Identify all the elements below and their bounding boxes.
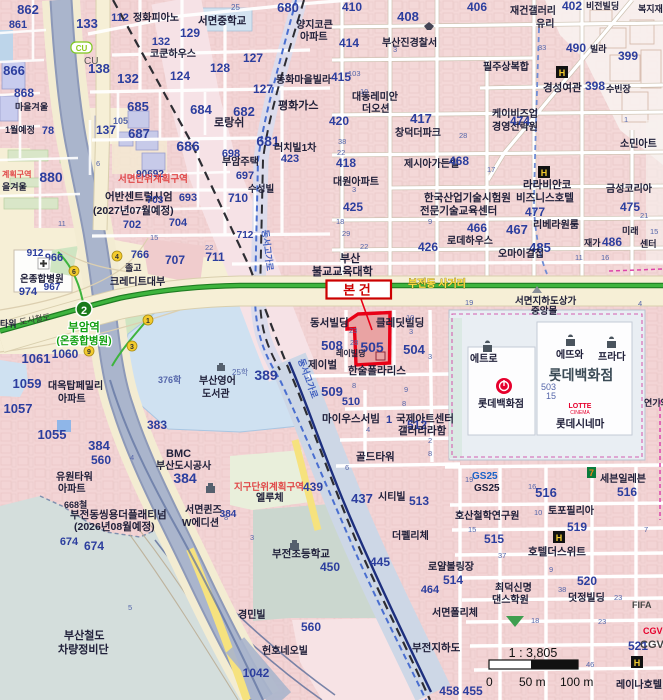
svg-text:11: 11 <box>58 219 66 228</box>
svg-text:댄스학원: 댄스학원 <box>492 593 529 606</box>
svg-text:H: H <box>559 68 566 78</box>
svg-text:437: 437 <box>351 491 373 506</box>
svg-text:1: 1 <box>624 115 628 124</box>
svg-text:2: 2 <box>81 305 87 317</box>
svg-text:16: 16 <box>601 253 609 262</box>
svg-text:137: 137 <box>96 123 116 137</box>
svg-text:최덕신명: 최덕신명 <box>495 581 532 594</box>
svg-text:128: 128 <box>210 61 230 75</box>
svg-text:967: 967 <box>44 282 61 293</box>
svg-text:리베라원룸: 리베라원룸 <box>533 218 579 231</box>
svg-text:비전빌딩: 비전빌딩 <box>586 0 619 11</box>
svg-text:129: 129 <box>180 26 200 40</box>
svg-text:부산: 부산 <box>340 251 360 265</box>
svg-text:766: 766 <box>131 249 149 261</box>
svg-text:갤러리라함: 갤러리라함 <box>398 424 447 437</box>
svg-text:674: 674 <box>84 539 104 553</box>
svg-text:0: 0 <box>486 675 493 689</box>
svg-text:BMC: BMC <box>166 448 191 460</box>
svg-text:513: 513 <box>409 494 429 508</box>
svg-text:423: 423 <box>281 153 299 165</box>
svg-text:부전지하도: 부전지하도 <box>412 641 461 654</box>
svg-text:3: 3 <box>130 344 134 351</box>
svg-text:710: 710 <box>228 191 248 205</box>
svg-text:516: 516 <box>617 485 637 499</box>
svg-text:로랑쉬: 로랑쉬 <box>214 115 244 129</box>
svg-text:3: 3 <box>352 185 356 194</box>
svg-text:862: 862 <box>17 2 39 17</box>
svg-text:프라다: 프라다 <box>598 350 626 363</box>
svg-text:제이벌: 제이벌 <box>308 358 337 371</box>
svg-text:560: 560 <box>301 620 321 634</box>
svg-text:504: 504 <box>403 342 425 357</box>
svg-text:37: 37 <box>498 551 506 560</box>
svg-text:468: 468 <box>449 154 469 168</box>
svg-text:호산철학연구원: 호산철학연구원 <box>455 509 519 522</box>
svg-text:대옥탑페밀리: 대옥탑페밀리 <box>48 379 103 392</box>
svg-text:25: 25 <box>231 3 240 12</box>
svg-text:687: 687 <box>128 126 150 141</box>
svg-text:19: 19 <box>465 298 473 307</box>
svg-text:CGV: CGV <box>640 639 663 651</box>
svg-text:아파트: 아파트 <box>300 30 328 43</box>
svg-text:21: 21 <box>640 211 648 220</box>
svg-text:금성코리아: 금성코리아 <box>606 182 653 195</box>
svg-text:15: 15 <box>650 227 658 236</box>
svg-text:골드타워: 골드타워 <box>356 450 395 463</box>
svg-text:8: 8 <box>428 449 432 458</box>
svg-text:시티빌: 시티빌 <box>378 490 406 503</box>
svg-text:1 : 3,805: 1 : 3,805 <box>509 646 558 660</box>
svg-text:1060: 1060 <box>52 347 79 361</box>
svg-text:974: 974 <box>19 286 38 298</box>
svg-text:재가: 재가 <box>584 237 601 248</box>
svg-text:유리: 유리 <box>536 17 554 30</box>
svg-text:재건갤러리: 재건갤러리 <box>510 4 556 17</box>
svg-text:16: 16 <box>528 482 536 491</box>
svg-text:롯데백화점: 롯데백화점 <box>549 367 613 383</box>
svg-text:GS25: GS25 <box>472 471 498 482</box>
svg-text:384: 384 <box>173 470 197 486</box>
svg-text:22: 22 <box>337 148 345 157</box>
svg-text:라라비안코: 라라비안코 <box>523 178 572 191</box>
svg-text:소민아트: 소민아트 <box>620 137 657 150</box>
svg-text:1057: 1057 <box>4 401 33 416</box>
svg-text:양지코큰: 양지코큰 <box>296 18 333 31</box>
svg-text:560: 560 <box>91 453 111 467</box>
svg-text:398: 398 <box>585 79 605 93</box>
svg-text:에뜨와: 에뜨와 <box>556 348 584 361</box>
svg-text:FIFA: FIFA <box>632 600 652 610</box>
svg-text:519: 519 <box>567 520 587 534</box>
svg-text:코쿤하우스: 코쿤하우스 <box>150 47 196 60</box>
svg-text:28: 28 <box>350 338 358 347</box>
svg-text:레이나호텔: 레이나호텔 <box>616 678 662 691</box>
svg-text:406: 406 <box>467 0 487 14</box>
svg-text:호텔더스위트: 호텔더스위트 <box>528 545 586 558</box>
svg-text:3: 3 <box>409 327 413 336</box>
svg-text:경성여관: 경성여관 <box>543 81 582 94</box>
svg-text:861: 861 <box>9 19 27 31</box>
svg-text:399: 399 <box>618 49 638 63</box>
svg-text:22: 22 <box>205 243 213 252</box>
svg-text:685: 685 <box>127 99 149 114</box>
svg-text:한술폴라리스: 한술폴라리스 <box>348 364 406 377</box>
svg-text:704: 704 <box>169 217 188 229</box>
svg-text:경민빌: 경민빌 <box>238 608 266 621</box>
svg-text:10: 10 <box>360 87 368 96</box>
svg-text:22: 22 <box>360 242 368 251</box>
svg-text:4: 4 <box>115 254 119 261</box>
svg-text:46: 46 <box>586 660 594 669</box>
svg-text:더오션: 더오션 <box>362 102 390 115</box>
svg-text:33: 33 <box>538 43 546 52</box>
svg-text:(온종합병원): (온종합병원) <box>56 334 111 347</box>
svg-text:7: 7 <box>589 468 594 478</box>
svg-text:414: 414 <box>339 36 359 50</box>
svg-text:458 455: 458 455 <box>439 684 483 698</box>
svg-text:서면폴리체: 서면폴리체 <box>432 606 478 619</box>
svg-text:138: 138 <box>88 61 110 76</box>
svg-text:10: 10 <box>534 508 542 517</box>
svg-text:불교교육대학: 불교교육대학 <box>312 264 373 278</box>
svg-text:467: 467 <box>506 222 528 237</box>
svg-text:693: 693 <box>179 192 197 204</box>
svg-text:필주상복합: 필주상복합 <box>483 60 530 73</box>
svg-text:9: 9 <box>428 217 432 226</box>
svg-text:127: 127 <box>243 51 263 65</box>
svg-text:383: 383 <box>147 418 167 432</box>
svg-text:425: 425 <box>343 200 363 214</box>
svg-text:674: 674 <box>60 536 79 548</box>
svg-text:475: 475 <box>620 200 640 214</box>
svg-text:롯데시네마: 롯데시네마 <box>556 417 605 430</box>
svg-text:418: 418 <box>336 156 356 170</box>
svg-text:509: 509 <box>321 384 343 399</box>
svg-text:6: 6 <box>96 159 100 168</box>
svg-text:124: 124 <box>170 69 190 83</box>
svg-text:697: 697 <box>236 170 254 182</box>
svg-text:23: 23 <box>614 593 622 602</box>
svg-text:8: 8 <box>402 399 406 408</box>
svg-text:78: 78 <box>42 125 54 137</box>
svg-text:417: 417 <box>410 111 432 126</box>
svg-text:912: 912 <box>27 248 44 259</box>
svg-text:오마이걸집: 오마이걸집 <box>498 247 544 260</box>
svg-text:부암주택: 부암주택 <box>222 155 259 168</box>
svg-text:132: 132 <box>117 71 139 86</box>
svg-text:426: 426 <box>418 240 438 254</box>
svg-text:3: 3 <box>393 45 397 54</box>
svg-text:수성빌: 수성빌 <box>248 183 274 195</box>
svg-text:376학: 376학 <box>158 374 182 385</box>
svg-text:중앙몰: 중앙몰 <box>531 305 557 317</box>
svg-text:23: 23 <box>598 617 606 626</box>
svg-text:세븐일레븐: 세븐일레븐 <box>600 472 646 485</box>
svg-text:880: 880 <box>39 169 63 185</box>
svg-text:1059: 1059 <box>13 376 42 391</box>
svg-text:1055: 1055 <box>38 427 67 442</box>
svg-text:졸고: 졸고 <box>125 263 142 273</box>
svg-text:703: 703 <box>147 195 164 206</box>
svg-text:2: 2 <box>428 436 432 445</box>
svg-text:11: 11 <box>575 253 583 262</box>
svg-text:9: 9 <box>549 565 553 574</box>
svg-text:서면중학교: 서면중학교 <box>198 14 247 27</box>
svg-text:타워: 타워 <box>0 318 17 329</box>
svg-text:CINEMA: CINEMA <box>570 410 590 416</box>
svg-text:엘루체: 엘루체 <box>256 491 284 504</box>
svg-text:창덕더파크: 창덕더파크 <box>395 126 441 139</box>
svg-text:미래: 미래 <box>622 225 639 236</box>
svg-text:4: 4 <box>366 425 370 434</box>
svg-text:서면단위계획구역: 서면단위계획구역 <box>118 173 188 185</box>
svg-text:868: 868 <box>14 86 34 100</box>
svg-text:23: 23 <box>349 326 357 335</box>
svg-text:센터: 센터 <box>640 238 657 249</box>
svg-text:1: 1 <box>146 318 150 325</box>
svg-text:정화피아노: 정화피아노 <box>133 11 179 24</box>
svg-text:본 건: 본 건 <box>343 283 371 298</box>
svg-text:서면퀸즈: 서면퀸즈 <box>185 503 222 516</box>
svg-text:부산진경찰서: 부산진경찰서 <box>382 36 437 49</box>
svg-text:19: 19 <box>465 475 473 484</box>
svg-text:로얄볼링장: 로얄볼링장 <box>428 560 475 573</box>
svg-text:에트로: 에트로 <box>470 352 498 365</box>
svg-text:H: H <box>556 533 563 543</box>
svg-text:389: 389 <box>254 367 278 383</box>
svg-text:비즈니스호텔: 비즈니스호텔 <box>516 191 574 204</box>
svg-text:684: 684 <box>190 102 212 117</box>
svg-text:9: 9 <box>404 385 408 394</box>
svg-text:686: 686 <box>176 138 200 154</box>
svg-text:H: H <box>541 168 548 178</box>
svg-text:아파트: 아파트 <box>58 482 86 495</box>
svg-text:15: 15 <box>546 391 556 401</box>
svg-text:차량정비단: 차량정비단 <box>58 642 109 656</box>
svg-text:516: 516 <box>535 485 557 500</box>
svg-text:520: 520 <box>577 574 597 588</box>
svg-text:450: 450 <box>320 560 340 574</box>
svg-text:전문기술교육센터: 전문기술교육센터 <box>420 204 497 217</box>
svg-text:동서빌딩: 동서빌딩 <box>310 316 349 329</box>
svg-text:LOTTE: LOTTE <box>569 403 592 410</box>
svg-text:로데하우스: 로데하우스 <box>447 234 493 247</box>
svg-text:아파트: 아파트 <box>58 392 86 405</box>
svg-text:1: 1 <box>386 414 392 426</box>
svg-text:덧정빌딩: 덧정빌딩 <box>568 591 605 604</box>
svg-text:38: 38 <box>558 585 566 594</box>
svg-text:계획구역: 계획구역 <box>2 169 31 179</box>
svg-text:3: 3 <box>428 352 432 361</box>
svg-text:464: 464 <box>421 584 440 596</box>
svg-text:514: 514 <box>443 573 463 587</box>
svg-text:부산철도: 부산철도 <box>64 628 104 642</box>
svg-text:부전초등학교: 부전초등학교 <box>272 547 330 560</box>
svg-text:8: 8 <box>352 381 356 390</box>
svg-text:6: 6 <box>345 463 349 472</box>
svg-text:515: 515 <box>484 532 504 546</box>
svg-text:롯데백화점: 롯데백화점 <box>478 397 524 410</box>
svg-text:127: 127 <box>253 82 273 96</box>
svg-text:100 m: 100 m <box>560 675 593 689</box>
svg-text:클레딧빌딩: 클레딧빌딩 <box>376 316 424 329</box>
svg-text:헌호네오빌: 헌호네오빌 <box>262 644 308 657</box>
svg-text:384: 384 <box>220 509 237 520</box>
svg-text:크레디트대부: 크레디트대부 <box>110 275 165 288</box>
svg-text:490: 490 <box>566 41 586 55</box>
svg-text:477: 477 <box>525 205 545 219</box>
svg-text:마이우스서빔: 마이우스서빔 <box>322 412 380 425</box>
svg-text:680: 680 <box>277 0 299 15</box>
svg-text:한국산업기술시험원: 한국산업기술시험원 <box>424 191 511 204</box>
svg-text:CGV: CGV <box>643 626 663 636</box>
svg-text:부전동 사거리: 부전동 사거리 <box>408 277 466 290</box>
svg-text:5: 5 <box>128 603 132 612</box>
svg-text:1061: 1061 <box>22 351 51 366</box>
svg-text:을겨울: 을겨울 <box>2 181 27 192</box>
svg-text:15: 15 <box>150 233 158 242</box>
svg-text:3: 3 <box>250 533 254 542</box>
svg-text:레이빌딩: 레이빌딩 <box>336 348 365 358</box>
svg-text:50 m: 50 m <box>519 675 546 689</box>
svg-text:132: 132 <box>152 36 170 48</box>
svg-text:9: 9 <box>87 349 91 356</box>
svg-text:486: 486 <box>602 235 622 249</box>
svg-text:408: 408 <box>397 9 419 24</box>
svg-text:복지재: 복지재 <box>638 3 663 14</box>
svg-text:토포필리아: 토포필리아 <box>548 504 595 517</box>
svg-text:빌라: 빌라 <box>590 43 607 54</box>
svg-text:133: 133 <box>76 16 98 31</box>
svg-text:1월예정: 1월예정 <box>5 124 35 135</box>
svg-text:수빈장: 수빈장 <box>606 83 632 94</box>
svg-text:15: 15 <box>468 525 476 534</box>
svg-text:445: 445 <box>370 555 390 569</box>
svg-text:18: 18 <box>336 217 344 226</box>
svg-text:28: 28 <box>459 131 467 140</box>
svg-text:384: 384 <box>88 438 110 453</box>
svg-text:17: 17 <box>487 165 495 174</box>
svg-text:420: 420 <box>329 114 349 128</box>
svg-text:112: 112 <box>111 12 129 24</box>
svg-text:H: H <box>634 658 641 668</box>
svg-text:동화마을빌라: 동화마을빌라 <box>276 73 332 86</box>
svg-text:410: 410 <box>342 0 362 14</box>
svg-text:부산영어: 부산영어 <box>199 374 236 387</box>
svg-text:평화가스: 평화가스 <box>278 98 318 112</box>
svg-text:더펠리체: 더펠리체 <box>392 529 429 542</box>
svg-text:474: 474 <box>510 114 530 128</box>
svg-text:18: 18 <box>531 616 539 625</box>
svg-text:W에디션: W에디션 <box>182 516 219 529</box>
svg-text:711: 711 <box>205 250 225 264</box>
svg-text:29: 29 <box>342 229 350 238</box>
svg-text:지구단위계획구역: 지구단위계획구역 <box>234 481 304 493</box>
svg-text:CU: CU <box>76 44 88 53</box>
svg-text:4: 4 <box>638 299 642 308</box>
svg-text:4: 4 <box>130 453 134 462</box>
svg-text:8: 8 <box>224 513 228 522</box>
svg-text:466: 466 <box>467 221 487 235</box>
svg-text:707: 707 <box>165 253 185 267</box>
svg-text:702: 702 <box>123 219 141 231</box>
svg-text:연기와: 연기와 <box>644 397 663 408</box>
svg-text:마을겨울: 마을겨울 <box>15 101 48 112</box>
svg-text:10: 10 <box>406 313 414 322</box>
svg-text:GS25: GS25 <box>474 483 500 494</box>
svg-text:103: 103 <box>348 69 361 78</box>
svg-text:38: 38 <box>338 137 346 146</box>
svg-text:712: 712 <box>237 230 254 241</box>
svg-text:부암역: 부암역 <box>68 320 100 334</box>
svg-text:부전동씽용더플래티넘: 부전동씽용더플래티넘 <box>70 508 167 521</box>
svg-text:402: 402 <box>562 0 582 13</box>
svg-text:도서관: 도서관 <box>202 387 230 400</box>
svg-text:6: 6 <box>72 269 76 276</box>
svg-text:유원타워: 유원타워 <box>56 470 93 483</box>
svg-text:439: 439 <box>303 480 323 494</box>
svg-text:866: 866 <box>3 63 25 78</box>
svg-text:(2026년08월예정): (2026년08월예정) <box>74 520 155 533</box>
svg-text:7: 7 <box>644 525 648 534</box>
svg-text:510: 510 <box>342 396 360 408</box>
svg-text:1042: 1042 <box>243 666 270 680</box>
